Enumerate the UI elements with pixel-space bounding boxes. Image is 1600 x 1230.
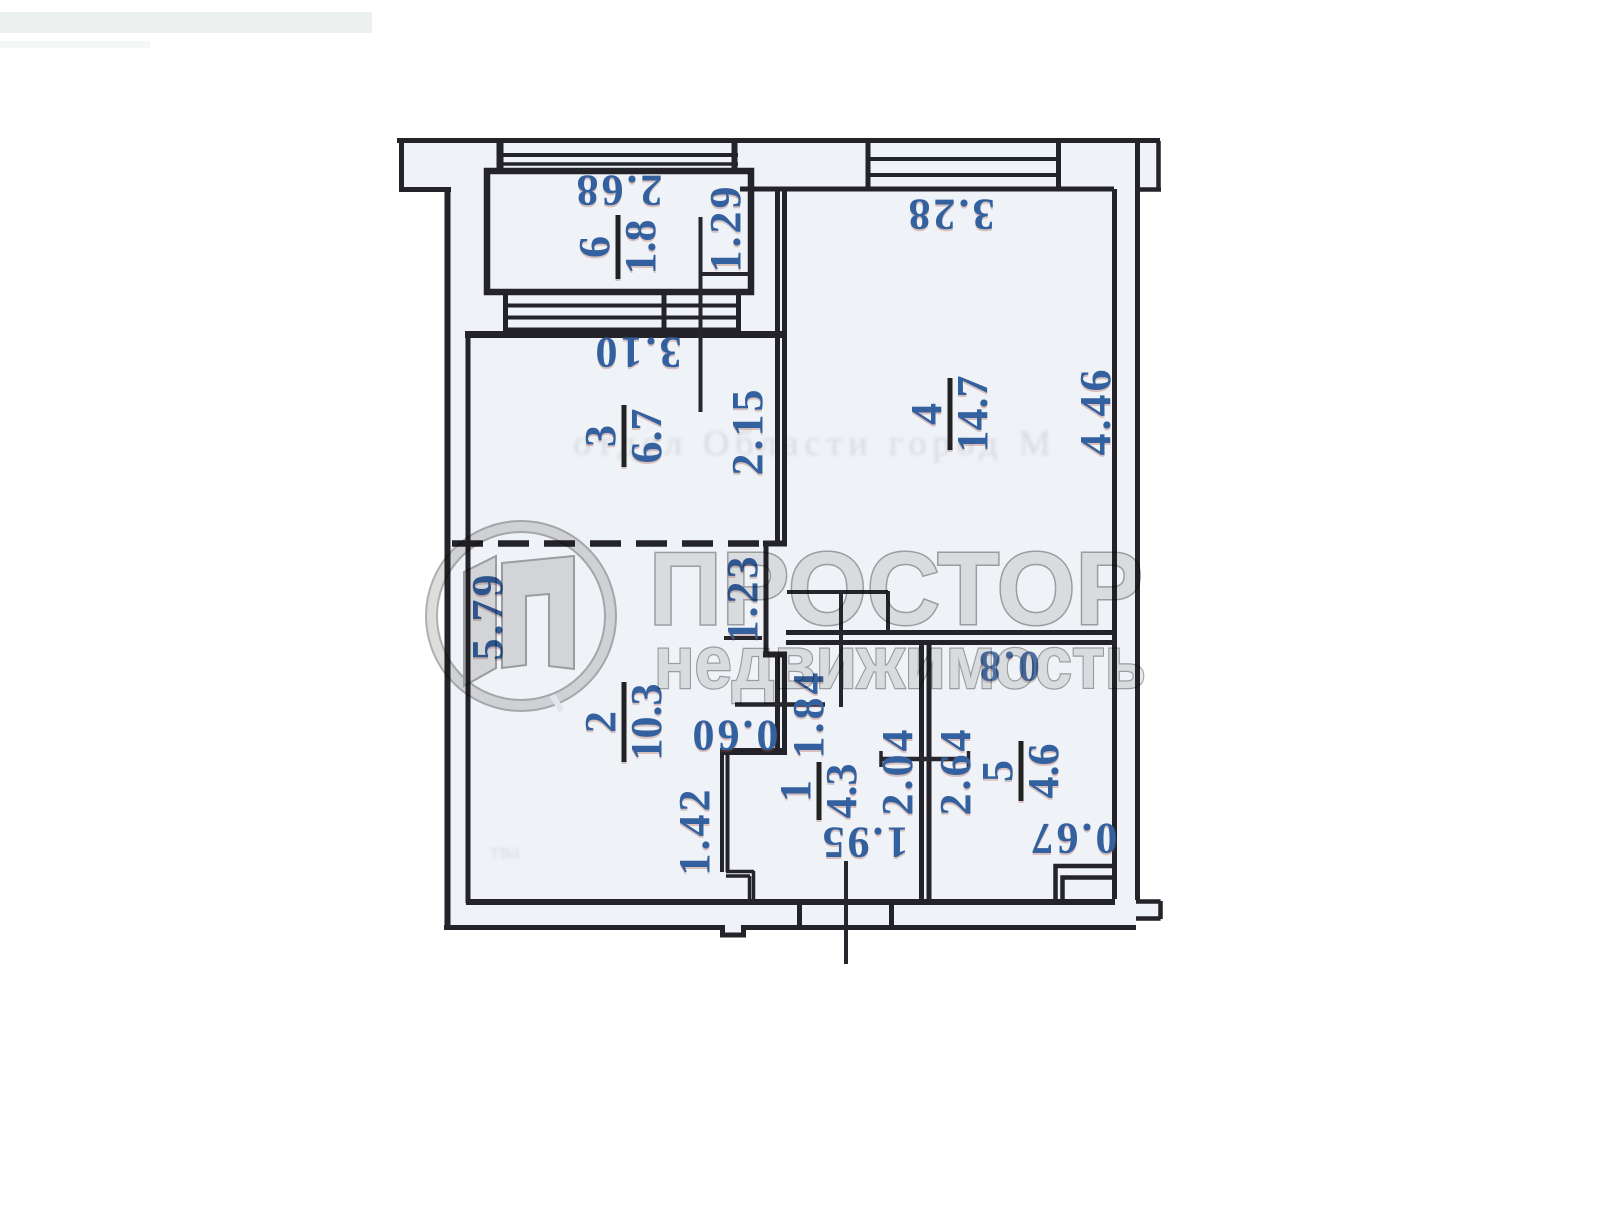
svg-text:4.46: 4.46 (1071, 367, 1120, 456)
svg-text:1: 1 (771, 780, 820, 802)
svg-text:4.6: 4.6 (1019, 744, 1068, 799)
svg-text:6.7: 6.7 (622, 409, 671, 464)
svg-text:0.60: 0.60 (690, 711, 779, 760)
svg-text:5: 5 (973, 760, 1022, 782)
svg-text:1.29: 1.29 (701, 184, 750, 273)
svg-text:2.68: 2.68 (574, 166, 663, 215)
svg-text:2.15: 2.15 (723, 387, 772, 476)
svg-text:2: 2 (576, 711, 625, 733)
svg-text:3.10: 3.10 (593, 328, 682, 377)
svg-text:2.04: 2.04 (873, 727, 922, 816)
svg-text:3.28: 3.28 (906, 190, 995, 239)
svg-text:1.8: 1.8 (616, 220, 665, 275)
svg-text:4: 4 (902, 403, 951, 425)
svg-text:14.7: 14.7 (948, 376, 997, 453)
svg-text:6: 6 (570, 236, 619, 258)
svg-text:недвижимость: недвижимость (654, 621, 1146, 704)
svg-text:4.3: 4.3 (817, 764, 866, 819)
svg-text:0.67: 0.67 (1029, 814, 1118, 863)
svg-text:тва: тва (490, 838, 520, 863)
svg-text:1.42: 1.42 (670, 787, 719, 876)
svg-text:3: 3 (576, 425, 625, 447)
svg-text:1.95: 1.95 (820, 818, 909, 867)
